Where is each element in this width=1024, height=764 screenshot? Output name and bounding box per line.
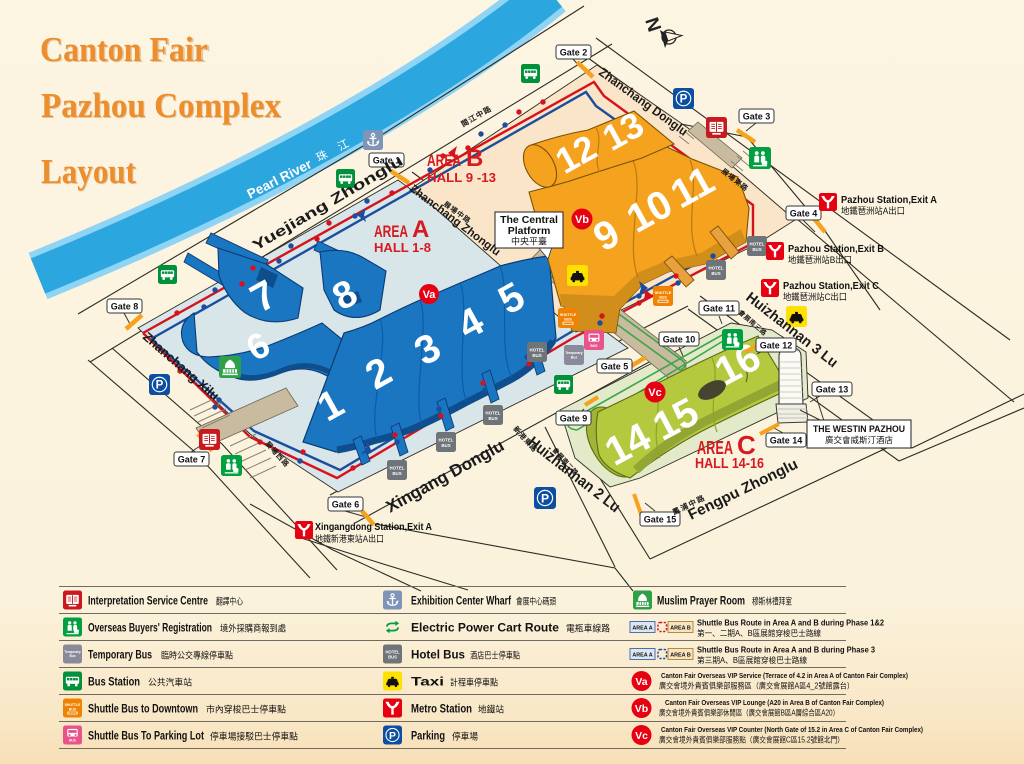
svg-text:廣交會境外貴賓俱樂部服務點（廣交會展館C區15.2號館北門）: 廣交會境外貴賓俱樂部服務點（廣交會展館C區15.2號館北門）	[659, 735, 844, 745]
svg-text:Gate 11: Gate 11	[703, 304, 735, 314]
svg-text:Canton Fair Overseas VIP Count: Canton Fair Overseas VIP Counter (North …	[661, 725, 924, 734]
svg-text:Temporary Bus: Temporary Bus	[88, 648, 152, 662]
svg-text:Gate 4: Gate 4	[790, 209, 818, 219]
svg-text:AREA: AREA	[374, 222, 408, 241]
svg-text:Layout: Layout	[41, 152, 136, 191]
svg-text:Gate 6: Gate 6	[332, 500, 360, 510]
svg-text:Exhibition Center Wharf: Exhibition Center Wharf	[411, 594, 512, 608]
svg-text:AREA B: AREA B	[670, 626, 691, 632]
svg-text:HALL 14-16: HALL 14-16	[695, 456, 764, 472]
svg-text:Gate 8: Gate 8	[111, 302, 139, 312]
svg-text:Hotel Bus: Hotel Bus	[411, 648, 465, 662]
svg-text:HALL 1-8: HALL 1-8	[374, 240, 431, 255]
svg-text:AREA A: AREA A	[632, 626, 652, 632]
svg-text:地鐵新港東站A出口: 地鐵新港東站A出口	[315, 533, 384, 544]
svg-text:Pazhou Station,Exit C: Pazhou Station,Exit C	[783, 281, 879, 292]
svg-text:Gate 12: Gate 12	[760, 341, 793, 351]
svg-text:Gate 13: Gate 13	[816, 385, 849, 395]
svg-text:Electric Power Cart Route: Electric Power Cart Route	[411, 621, 559, 635]
svg-text:Va: Va	[635, 676, 647, 688]
svg-text:Vc: Vc	[635, 730, 648, 742]
svg-text:Muslim Prayer Room: Muslim Prayer Room	[657, 594, 745, 608]
svg-text:Pazhou Station,Exit A: Pazhou Station,Exit A	[841, 195, 937, 206]
svg-text:Canton Fair Overseas VIP Servi: Canton Fair Overseas VIP Service (Terrac…	[661, 671, 909, 680]
svg-text:AREA B: AREA B	[670, 653, 691, 659]
svg-text:Shuttle Bus to Downtown: Shuttle Bus to Downtown	[88, 702, 198, 716]
svg-text:廣交會境外貴賓俱樂部服務區（廣交會展館A區4_2號館露台）: 廣交會境外貴賓俱樂部服務區（廣交會展館A區4_2號館露台）	[659, 681, 854, 691]
svg-text:地鐵琶洲站A出口: 地鐵琶洲站A出口	[841, 205, 905, 216]
svg-text:Canton Fair Overseas VIP Loung: Canton Fair Overseas VIP Lounge (A20 in …	[665, 698, 885, 707]
svg-text:A: A	[412, 216, 429, 243]
svg-text:境外採購商報到處: 境外採購商報到處	[220, 623, 286, 634]
svg-text:Shuttle Bus To Parking Lot: Shuttle Bus To Parking Lot	[88, 729, 204, 743]
svg-text:Interpretation Service Centre: Interpretation Service Centre	[88, 594, 208, 608]
svg-text:計程車停車點: 計程車停車點	[450, 677, 498, 688]
svg-text:Parking: Parking	[411, 729, 445, 743]
svg-text:第一、二期A、B區展館穿梭巴士路線: 第一、二期A、B區展館穿梭巴士路線	[697, 628, 821, 638]
svg-text:臨時公交專線停車點: 臨時公交專線停車點	[161, 650, 233, 661]
svg-text:公共汽車站: 公共汽車站	[148, 677, 192, 688]
svg-text:第三期A、B區展館穿梭巴士路線: 第三期A、B區展館穿梭巴士路線	[697, 655, 807, 665]
svg-text:Gate 2: Gate 2	[560, 48, 588, 58]
svg-text:Pazhou Station,Exit B: Pazhou Station,Exit B	[788, 244, 884, 255]
svg-text:Gate 10: Gate 10	[663, 335, 696, 345]
svg-text:市內穿梭巴士停車點: 市內穿梭巴士停車點	[206, 704, 286, 715]
svg-text:酒店巴士停車點: 酒店巴士停車點	[470, 650, 520, 661]
svg-text:Gate 5: Gate 5	[601, 362, 629, 372]
svg-text:AREA A: AREA A	[632, 653, 652, 659]
svg-text:穆斯林禮拜室: 穆斯林禮拜室	[752, 596, 792, 607]
svg-text:Vc: Vc	[648, 387, 661, 399]
svg-text:廣交會境外貴賓俱樂部休閒區（廣交會展館B區A層綜合區A20）: 廣交會境外貴賓俱樂部休閒區（廣交會展館B區A層綜合區A20）	[659, 708, 839, 718]
svg-text:Taxi: Taxi	[411, 675, 444, 689]
svg-text:Platform: Platform	[508, 225, 551, 237]
svg-text:中央平臺: 中央平臺	[511, 236, 547, 247]
svg-text:Vb: Vb	[575, 214, 589, 226]
svg-text:停車場接駁巴士停車點: 停車場接駁巴士停車點	[210, 731, 298, 742]
svg-text:Pazhou Complex: Pazhou Complex	[41, 86, 281, 125]
svg-text:Gate 3: Gate 3	[743, 112, 771, 122]
svg-text:翻譯中心: 翻譯中心	[216, 596, 243, 607]
svg-text:地鐵琶洲站C出口: 地鐵琶洲站C出口	[783, 291, 847, 302]
svg-text:Vb: Vb	[635, 703, 648, 715]
svg-text:HALL 9 -13: HALL 9 -13	[427, 170, 496, 185]
svg-text:Gate 7: Gate 7	[178, 455, 206, 465]
svg-text:Gate 14: Gate 14	[770, 436, 803, 446]
svg-text:Bus Station: Bus Station	[88, 675, 140, 689]
svg-text:Va: Va	[423, 289, 437, 301]
svg-text:Shuttle Bus Route in Area A an: Shuttle Bus Route in Area A and B during…	[697, 645, 875, 655]
svg-text:停車場: 停車場	[452, 731, 478, 742]
svg-text:Gate 15: Gate 15	[644, 515, 677, 525]
svg-text:地鐵站: 地鐵站	[478, 704, 504, 715]
svg-text:Shuttle Bus Route in Area A an: Shuttle Bus Route in Area A and B during…	[697, 618, 884, 628]
svg-text:地鐵琶洲站B出口: 地鐵琶洲站B出口	[788, 254, 852, 265]
svg-text:Overseas Buyers' Registration: Overseas Buyers' Registration	[88, 621, 212, 635]
svg-text:THE WESTIN PAZHOU: THE WESTIN PAZHOU	[813, 424, 905, 435]
svg-text:廣交會威斯汀酒店: 廣交會威斯汀酒店	[825, 435, 894, 445]
svg-text:會展中心碼頭: 會展中心碼頭	[516, 596, 556, 607]
svg-text:Canton Fair: Canton Fair	[40, 30, 208, 69]
svg-text:Metro Station: Metro Station	[411, 702, 472, 716]
svg-text:AREA: AREA	[427, 151, 461, 170]
svg-text:AREA: AREA	[697, 438, 733, 458]
svg-text:Gate 9: Gate 9	[560, 414, 588, 424]
svg-text:B: B	[466, 145, 483, 172]
svg-text:Xingangdong Station,Exit A: Xingangdong Station,Exit A	[315, 521, 432, 533]
svg-text:電瓶車線路: 電瓶車線路	[566, 623, 610, 634]
